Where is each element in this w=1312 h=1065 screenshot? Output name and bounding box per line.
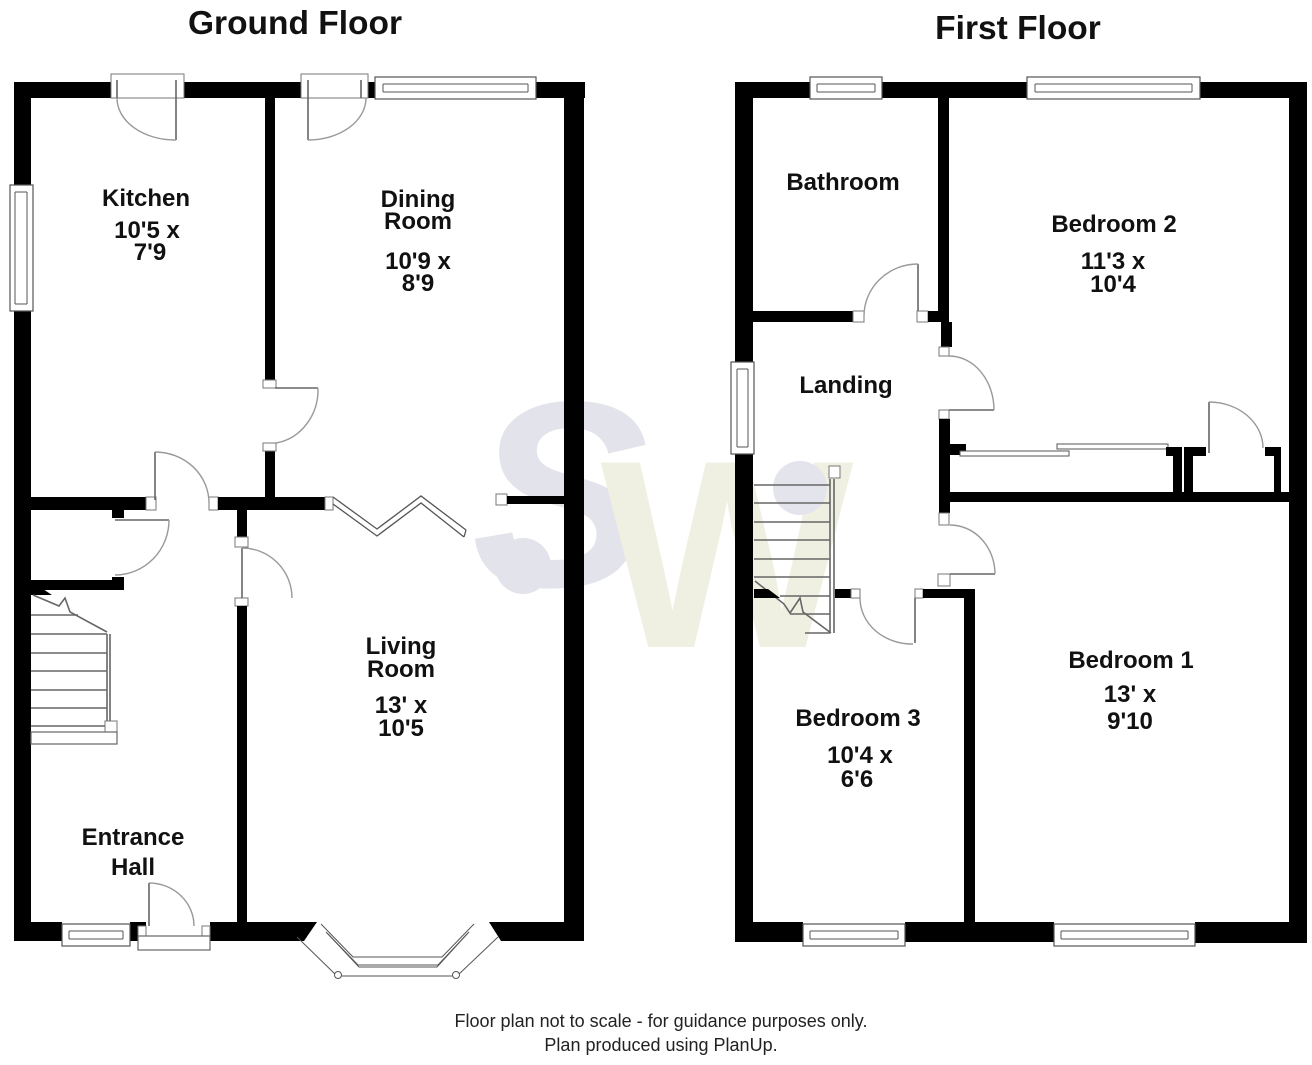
- svg-text:Room: Room: [384, 208, 452, 235]
- svg-text:10'5: 10'5: [378, 715, 424, 742]
- svg-text:7'9: 7'9: [134, 239, 166, 266]
- svg-text:Bedroom 2: Bedroom 2: [1051, 211, 1176, 238]
- svg-text:8'9: 8'9: [402, 270, 434, 297]
- svg-text:Kitchen: Kitchen: [102, 185, 190, 212]
- svg-text:10'4 x: 10'4 x: [827, 742, 893, 769]
- svg-text:6'6: 6'6: [841, 766, 873, 793]
- svg-text:13' x: 13' x: [1104, 681, 1157, 708]
- svg-text:Bedroom 3: Bedroom 3: [795, 705, 920, 732]
- svg-text:Entrance: Entrance: [82, 824, 185, 851]
- svg-text:10'4: 10'4: [1090, 271, 1136, 298]
- svg-text:First Floor: First Floor: [935, 10, 1101, 47]
- svg-text:Floor plan not to scale - for: Floor plan not to scale - for guidance p…: [455, 1011, 868, 1031]
- svg-text:Landing: Landing: [799, 372, 892, 399]
- svg-text:9'10: 9'10: [1107, 708, 1153, 735]
- svg-text:Bathroom: Bathroom: [786, 169, 899, 196]
- svg-text:Room: Room: [367, 656, 435, 683]
- svg-text:Plan produced using PlanUp.: Plan produced using PlanUp.: [544, 1035, 777, 1055]
- svg-text:Hall: Hall: [111, 854, 155, 881]
- svg-text:Ground Floor: Ground Floor: [188, 5, 402, 42]
- svg-text:W: W: [601, 404, 856, 704]
- svg-text:Bedroom 1: Bedroom 1: [1068, 647, 1193, 674]
